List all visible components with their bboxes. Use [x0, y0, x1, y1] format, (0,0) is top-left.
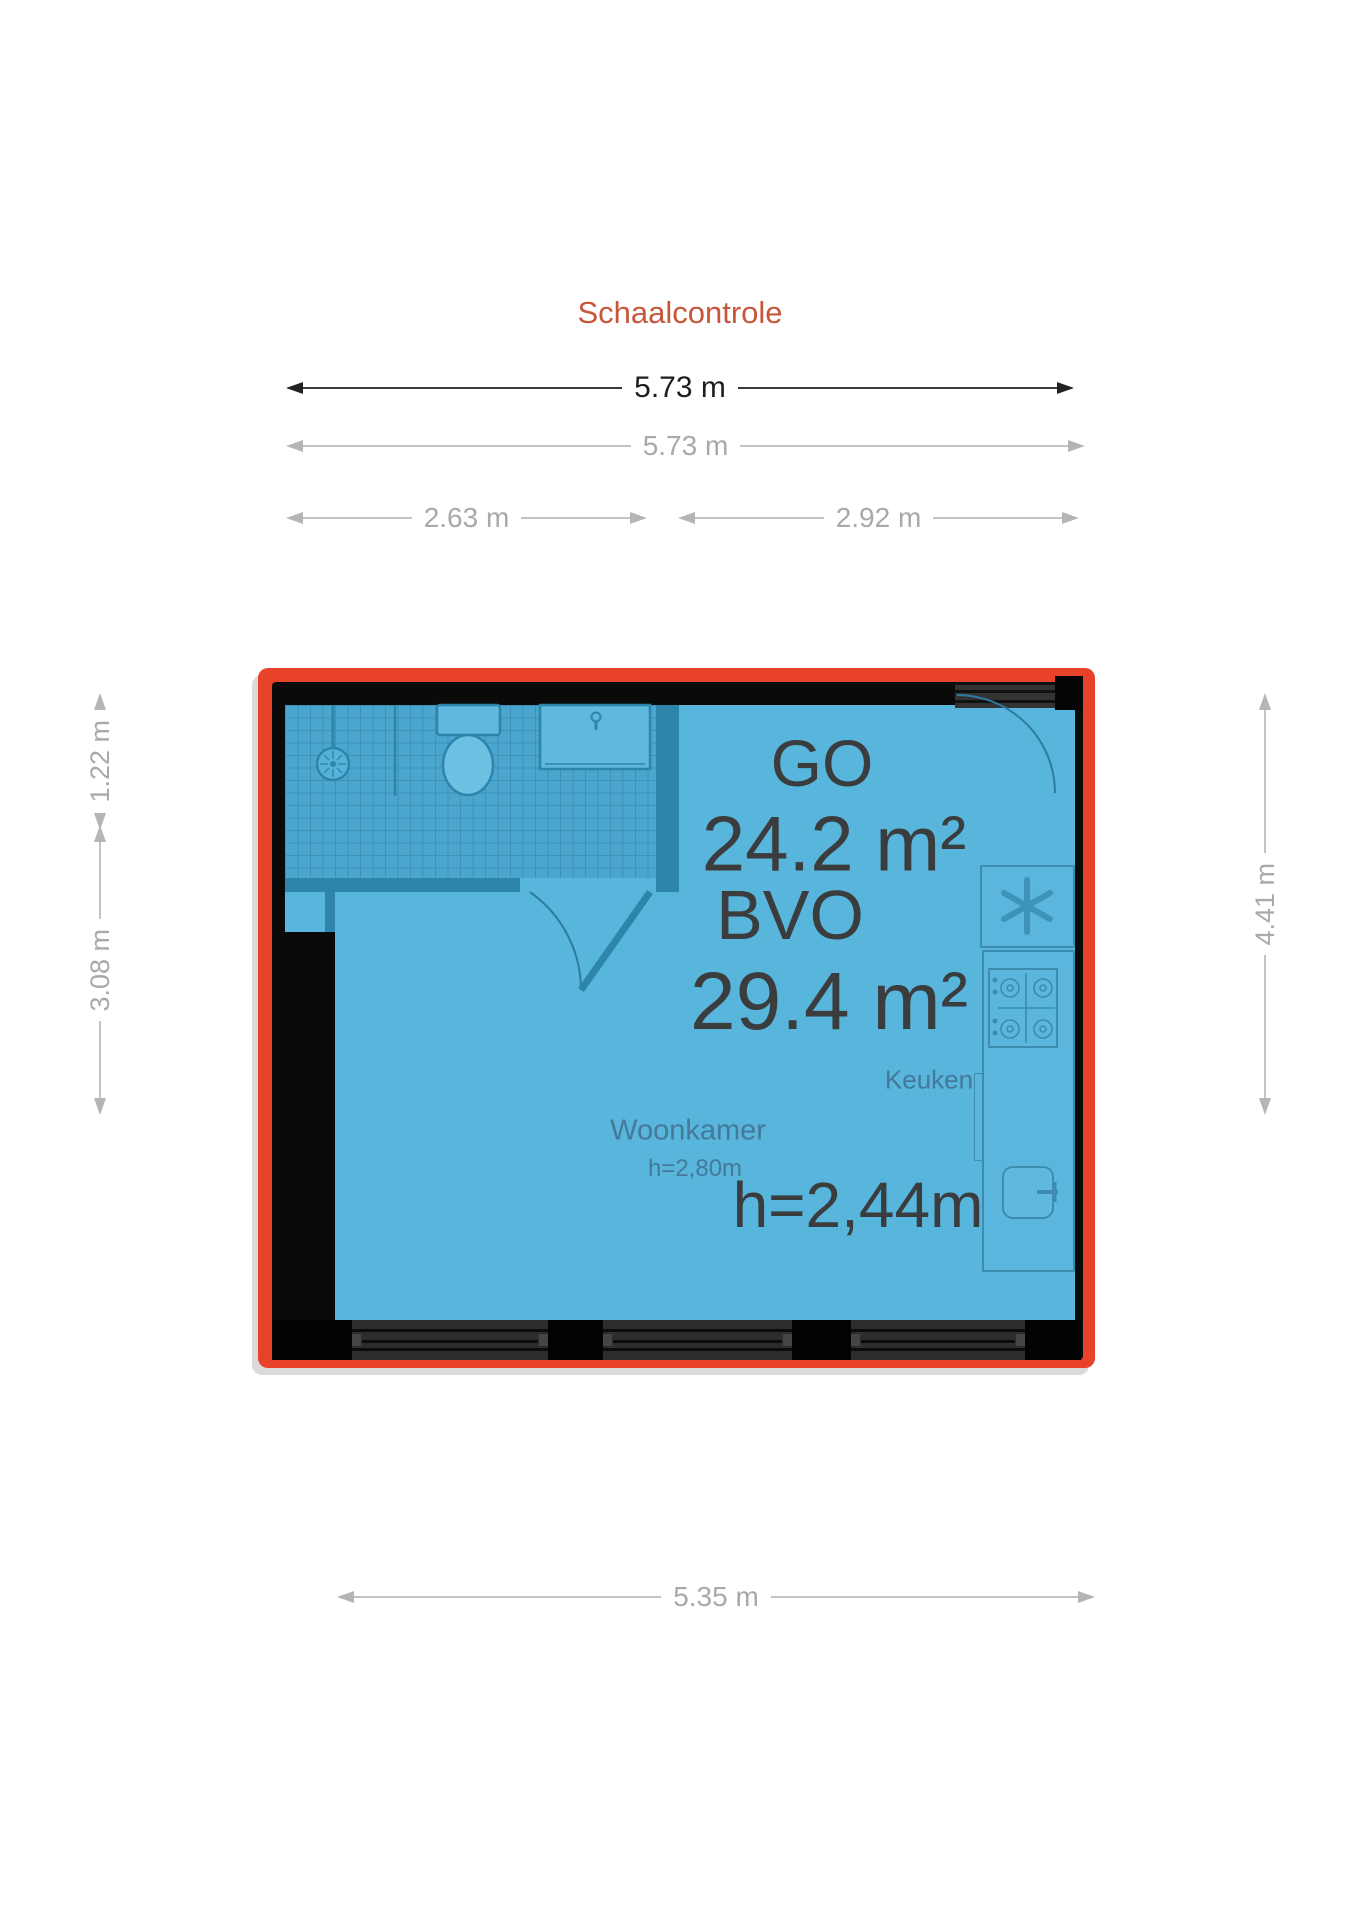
dim-label: 1.22 m — [85, 710, 116, 813]
dim-bottom-width: 5.35 m — [337, 1577, 1095, 1617]
dim-line — [1264, 710, 1266, 853]
dim-label: 5.35 m — [661, 1581, 771, 1613]
window-cap — [539, 1334, 548, 1346]
dim-line — [1264, 955, 1266, 1098]
arrow-right-icon — [1068, 440, 1085, 452]
window — [851, 1329, 1025, 1351]
dim-line — [303, 517, 412, 519]
arrow-down-icon — [1259, 1098, 1271, 1115]
arrow-up-icon — [1259, 693, 1271, 710]
dim-label: 2.92 m — [824, 502, 934, 534]
floorplan: GO 24.2 m² BVO 29.4 m² h=2,44m Woonkamer… — [258, 668, 1095, 1368]
wall-pier — [792, 1320, 851, 1360]
wall-pier — [272, 1320, 352, 1360]
ceiling-height-overall: h=2,44m — [733, 1168, 984, 1242]
dim-line — [303, 387, 622, 389]
dim-line — [99, 1021, 101, 1098]
dim-label: 5.73 m — [631, 430, 741, 462]
window — [603, 1329, 792, 1351]
window-cap — [851, 1334, 860, 1346]
dim-label: 3.08 m — [85, 919, 116, 1022]
window — [352, 1329, 548, 1351]
left-structural-wall — [272, 932, 335, 1320]
page-title: Schaalcontrole — [430, 295, 930, 331]
dim-line — [771, 1596, 1078, 1598]
arrow-right-icon — [1057, 382, 1074, 394]
scale-check-page: Schaalcontrole 5.73 m 5.73 m 2.63 m 2.92… — [0, 0, 1358, 1920]
window-cap — [352, 1334, 361, 1346]
arrow-right-icon — [1078, 1591, 1095, 1603]
arrow-right-icon — [1062, 512, 1079, 524]
dim-label: 2.63 m — [412, 502, 522, 534]
dim-line — [354, 1596, 661, 1598]
dim-line — [933, 517, 1062, 519]
window-glass-line — [362, 1340, 538, 1343]
arrow-left-icon — [286, 382, 303, 394]
arrow-left-icon — [678, 512, 695, 524]
dim-line — [740, 445, 1068, 447]
ceiling-height-living: h=2,80m — [648, 1155, 742, 1183]
entrance-door — [955, 682, 1055, 708]
bathroom-south-wall — [285, 878, 520, 892]
bathroom-floor — [285, 705, 656, 878]
arrow-up-icon — [94, 825, 106, 842]
arrow-right-icon — [630, 512, 647, 524]
arrow-left-icon — [286, 512, 303, 524]
wall-pier — [548, 1320, 603, 1360]
wall-pier — [1025, 1320, 1081, 1360]
nook-partition — [325, 892, 335, 935]
kitchen-counter — [982, 950, 1075, 1272]
dim-line — [303, 445, 631, 447]
dim-right-height: 4.41 m — [1248, 693, 1282, 1115]
window-cap — [1016, 1334, 1025, 1346]
dim-line — [695, 517, 824, 519]
window-wall — [272, 1320, 1081, 1360]
go-label: GO — [771, 725, 874, 801]
dim-line — [521, 517, 630, 519]
arrow-up-icon — [94, 693, 106, 710]
dim-overall-width-secondary: 5.73 m — [286, 426, 1085, 466]
counter-edge — [974, 1073, 983, 1161]
window-glass-line — [613, 1340, 782, 1343]
dim-line — [738, 387, 1057, 389]
room-label-kitchen: Keuken — [885, 1065, 973, 1096]
arrow-left-icon — [337, 1591, 354, 1603]
dim-line — [99, 842, 101, 919]
window-glass-line — [861, 1340, 1015, 1343]
dim-width-left-part: 2.63 m — [286, 498, 647, 538]
dim-overall-width-primary: 5.73 m — [286, 368, 1074, 408]
arrow-down-icon — [94, 1098, 106, 1115]
room-label-living: Woonkamer — [610, 1115, 766, 1148]
dim-left-lower-height: 3.08 m — [83, 825, 117, 1115]
window-cap — [783, 1334, 792, 1346]
arrow-left-icon — [286, 440, 303, 452]
bvo-label: BVO — [716, 875, 864, 955]
dim-label: 4.41 m — [1250, 853, 1281, 956]
dim-width-right-part: 2.92 m — [678, 498, 1079, 538]
bathroom-east-wall — [656, 705, 679, 892]
dim-left-upper-height: 1.22 m — [83, 693, 117, 810]
dim-label: 5.73 m — [622, 371, 738, 405]
window-cap — [603, 1334, 612, 1346]
corner-wall-block — [1055, 676, 1083, 710]
bvo-value: 29.4 m² — [690, 955, 968, 1049]
ventilation-unit — [980, 865, 1075, 948]
